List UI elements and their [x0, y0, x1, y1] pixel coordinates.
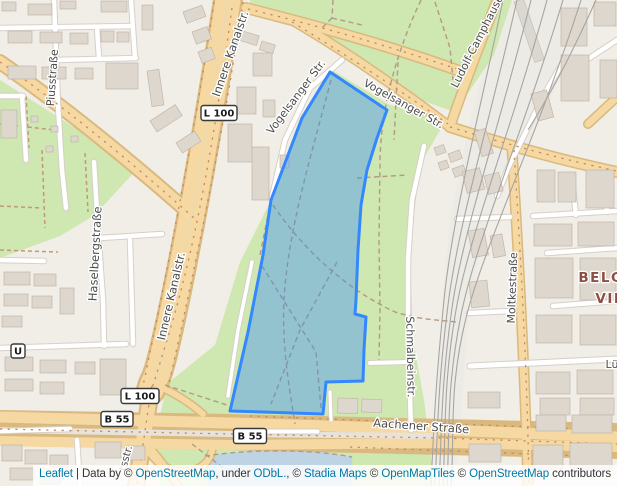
attribution-link-odbl-[interactable]: ODbL. — [254, 468, 287, 480]
label-district-viertel: VIE — [595, 291, 617, 307]
attribution-text-1: | Data by © — [73, 468, 136, 480]
badge-l100-south: L 100 — [121, 389, 159, 404]
badge-l100-north: L 100 — [201, 106, 237, 121]
svg-text:L 100: L 100 — [204, 109, 235, 120]
badge-b55-west: B 55 — [101, 412, 133, 427]
attribution-link-openstreetmap[interactable]: OpenStreetMap — [469, 468, 549, 480]
label-moltkestrasse: Moltkestraße — [505, 252, 520, 324]
attribution-text-9: © — [455, 468, 470, 480]
badge-ubahn-station: U — [11, 344, 25, 358]
svg-text:B 55: B 55 — [104, 415, 129, 426]
attribution-text-3: , under — [215, 468, 253, 480]
attribution-link-leaflet[interactable]: Leaflet — [39, 468, 73, 480]
label-schmalbeinstr: Schmalbeinstr. — [403, 316, 417, 398]
attribution-link-stadia-maps[interactable]: Stadia Maps — [304, 468, 367, 480]
label-luetticher-str-partial: Lü — [606, 358, 617, 371]
attribution-text-11: contributors — [549, 468, 611, 480]
attribution-text-5: , © — [286, 468, 304, 480]
svg-text:L 100: L 100 — [125, 392, 156, 403]
attribution-bar: Leaflet | Data by © OpenStreetMap, under… — [33, 465, 617, 486]
label-district-belgisches: BELG — [578, 270, 617, 286]
attribution-link-openmaptiles[interactable]: OpenMapTiles — [381, 468, 454, 480]
map-canvas[interactable]: PiusstraßeInnere Kanalstr.Innere Kanalst… — [0, 0, 617, 486]
attribution-text-7: © — [367, 468, 382, 480]
svg-text:B 55: B 55 — [237, 432, 262, 443]
svg-text:U: U — [14, 347, 22, 358]
badge-b55-east: B 55 — [234, 429, 267, 444]
attribution-link-openstreetmap[interactable]: OpenStreetMap — [135, 468, 215, 480]
